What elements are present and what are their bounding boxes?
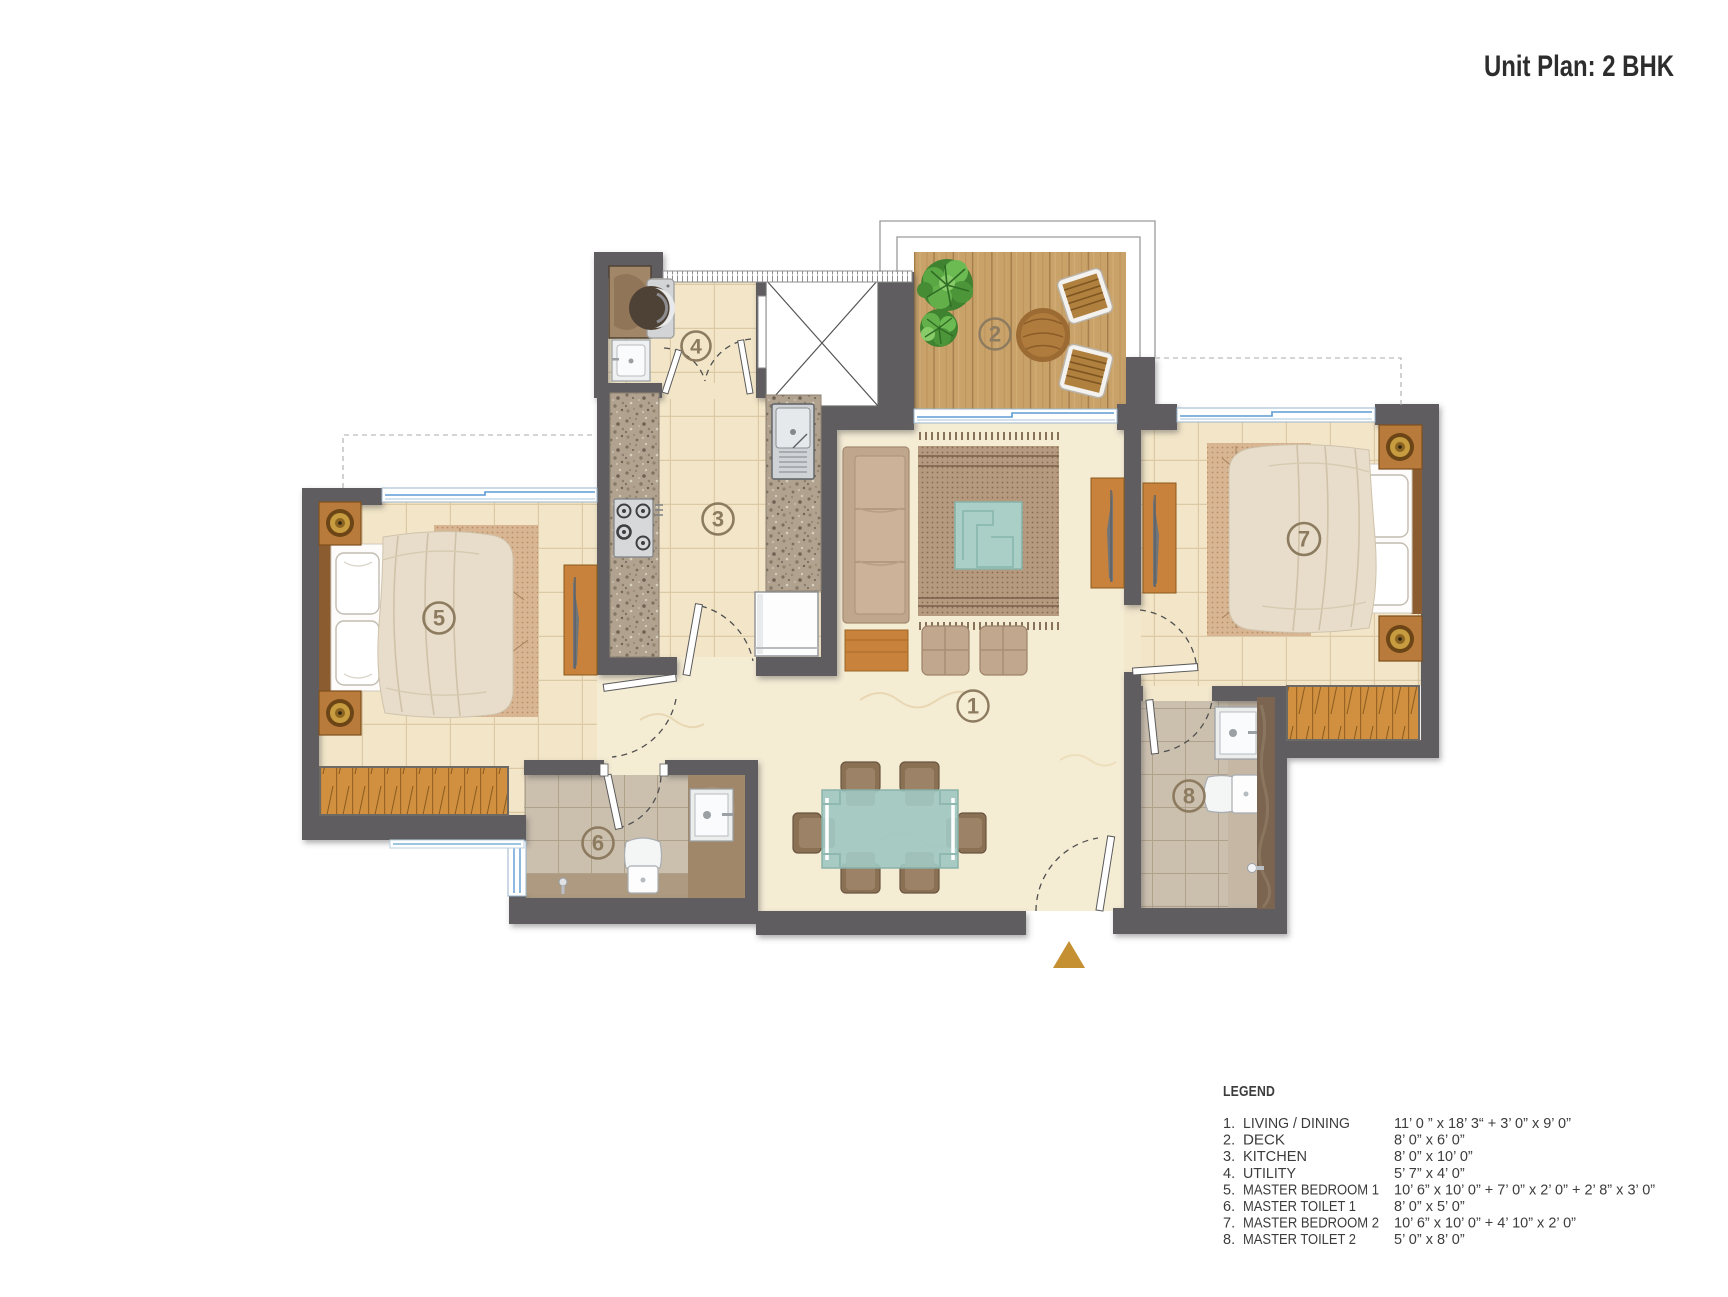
svg-text:8: 8: [1183, 784, 1195, 809]
svg-text:7: 7: [1298, 527, 1310, 552]
svg-text:MASTER BEDROOM 2: MASTER BEDROOM 2: [1243, 1216, 1379, 1232]
svg-text:Unit Plan: 2 BHK: Unit Plan: 2 BHK: [1484, 50, 1674, 83]
svg-text:7.: 7.: [1223, 1216, 1235, 1232]
svg-text:UTILITY: UTILITY: [1243, 1166, 1296, 1182]
svg-text:LEGEND: LEGEND: [1223, 1084, 1275, 1100]
svg-text:5’ 0” x 8’ 0”: 5’ 0” x 8’ 0”: [1394, 1232, 1465, 1248]
svg-text:3.: 3.: [1223, 1149, 1235, 1165]
svg-text:8’ 0” x 6’ 0”: 8’ 0” x 6’ 0”: [1394, 1133, 1465, 1149]
svg-text:MASTER TOILET 1: MASTER TOILET 1: [1243, 1199, 1356, 1215]
svg-text:3: 3: [712, 507, 724, 532]
svg-text:DECK: DECK: [1243, 1133, 1285, 1149]
svg-text:10’ 6” x 10’ 0” + 4’ 10” x 2’: 10’ 6” x 10’ 0” + 4’ 10” x 2’ 0”: [1394, 1216, 1576, 1232]
svg-text:6.: 6.: [1223, 1199, 1235, 1215]
svg-text:8’ 0” x 5’ 0”: 8’ 0” x 5’ 0”: [1394, 1199, 1465, 1215]
svg-text:8’ 0” x 10’ 0”: 8’ 0” x 10’ 0”: [1394, 1149, 1473, 1165]
svg-text:1.: 1.: [1223, 1116, 1235, 1132]
svg-text:MASTER BEDROOM 1: MASTER BEDROOM 1: [1243, 1182, 1379, 1198]
svg-text:LIVING / DINING: LIVING / DINING: [1243, 1116, 1350, 1132]
svg-text:KITCHEN: KITCHEN: [1243, 1149, 1307, 1165]
svg-text:4: 4: [690, 336, 702, 359]
svg-text:MASTER TOILET 2: MASTER TOILET 2: [1243, 1232, 1356, 1248]
svg-text:5.: 5.: [1223, 1182, 1235, 1198]
svg-text:10’ 6” x 10’ 0” + 7’ 0” x 2’ 0: 10’ 6” x 10’ 0” + 7’ 0” x 2’ 0” + 2’ 8” …: [1394, 1182, 1655, 1198]
svg-text:5: 5: [433, 606, 445, 631]
svg-text:2: 2: [989, 322, 1001, 347]
svg-text:2.: 2.: [1223, 1133, 1235, 1149]
svg-text:4.: 4.: [1223, 1166, 1235, 1182]
svg-text:8.: 8.: [1223, 1232, 1235, 1248]
svg-text:11’ 0 ” x 18’ 3“ + 3’ 0” x 9’: 11’ 0 ” x 18’ 3“ + 3’ 0” x 9’ 0”: [1394, 1116, 1571, 1132]
svg-text:5’ 7” x 4’ 0”: 5’ 7” x 4’ 0”: [1394, 1166, 1465, 1182]
svg-text:6: 6: [592, 831, 604, 856]
svg-text:1: 1: [967, 694, 979, 719]
